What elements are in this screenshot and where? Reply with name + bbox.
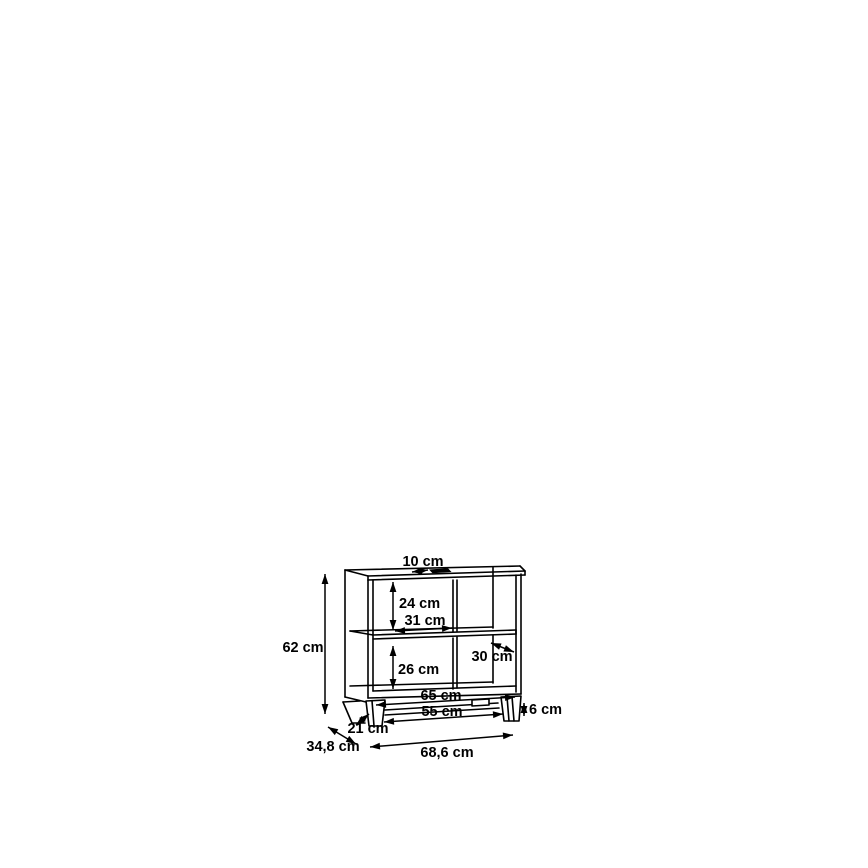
dimension-foot-height: 6 cm	[521, 702, 562, 718]
dimension-compartment-width: 31 cm	[395, 613, 452, 634]
dimension-overall-height: 62 cm	[282, 574, 328, 714]
dimension-label-foot-height: 6 cm	[529, 702, 562, 718]
dimension-annotations: 10 cm24 cm31 cm62 cm26 cm30 cm65 cm55 cm…	[282, 554, 562, 761]
front-right-foot	[501, 696, 521, 721]
dimension-lower-compartment-height: 26 cm	[390, 646, 440, 689]
furniture-dimension-diagram: 10 cm24 cm31 cm62 cm26 cm30 cm65 cm55 cm…	[0, 0, 868, 868]
dimension-label-compartment-width: 31 cm	[404, 613, 445, 629]
dimension-label-overall-width: 68,6 cm	[420, 745, 473, 761]
back-left-foot	[343, 701, 360, 702]
dimension-overall-width: 68,6 cm	[370, 732, 513, 761]
dimension-label-plinth-width: 55 cm	[421, 704, 462, 720]
left-side-panel	[345, 570, 373, 702]
dimension-label-overall-depth: 34,8 cm	[306, 739, 359, 755]
page: 10 cm24 cm31 cm62 cm26 cm30 cm65 cm55 cm…	[0, 0, 868, 868]
dimension-label-foot-depth: 21 cm	[347, 721, 388, 737]
dimension-label-top-slot-width: 10 cm	[402, 554, 443, 570]
dimension-label-upper-compartment-height: 24 cm	[399, 596, 440, 612]
dimension-label-overall-height: 62 cm	[282, 640, 323, 656]
dimension-label-lower-compartment-height: 26 cm	[398, 662, 439, 678]
dimension-label-interior-width: 65 cm	[420, 688, 461, 704]
center-divider	[453, 580, 457, 689]
dimension-label-interior-depth: 30 cm	[471, 649, 512, 665]
